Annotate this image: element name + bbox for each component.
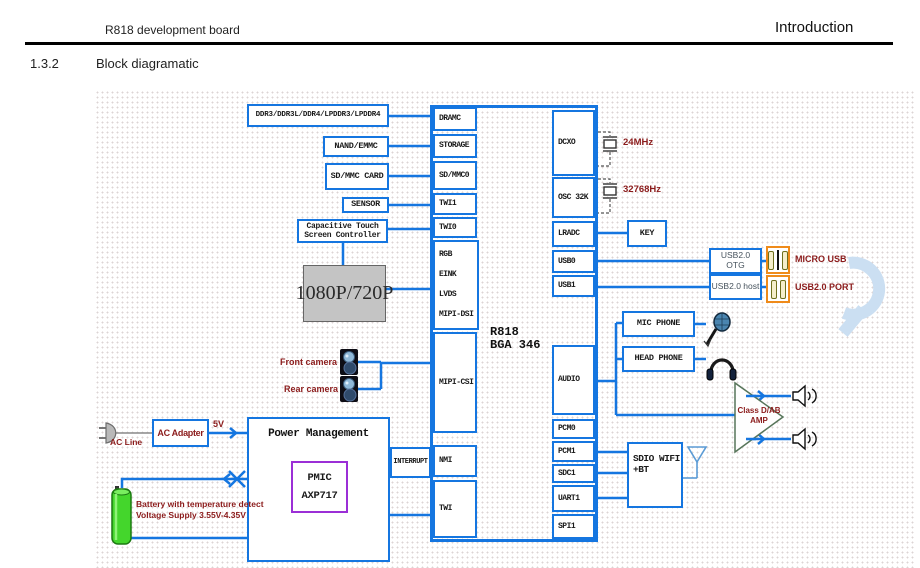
rail-5v-label: 5V: [213, 419, 224, 429]
head-phone-box: HEAD PHONE: [622, 346, 695, 372]
crystal-24mhz-icon: [598, 132, 617, 166]
battery-label: Battery with temperature detect Voltage …: [136, 499, 264, 521]
usb-port-label: USB2.0 PORT: [795, 282, 854, 292]
document-page: R818 development board Introduction 1.3.…: [0, 0, 920, 568]
chip-port-lradc: LRADC: [552, 221, 595, 247]
chip-port-dramc: DRAMC: [433, 107, 477, 131]
usb-otg-box: USB2.0 OTG: [709, 248, 762, 274]
sensor-box: SENSOR: [342, 197, 389, 213]
chip-port-pcm1: PCM1: [552, 441, 595, 462]
chip-port-uart1: UART1: [552, 485, 595, 512]
power-management-title: Power Management: [268, 428, 369, 441]
chip-port-storage: STORAGE: [433, 134, 477, 158]
headphone-icon: [707, 360, 736, 380]
amp-label-line2: AMP: [736, 416, 782, 425]
chip-port-usb0: USB0: [552, 250, 595, 273]
usb-host-box: USB2.0 host: [709, 274, 762, 300]
chip-port-sdmmc0: SD/MMC0: [433, 161, 477, 190]
mic-icon: [704, 313, 730, 346]
chip-port-twi: TWI: [433, 480, 477, 538]
rear-camera-label: Rear camera: [284, 384, 336, 394]
rear-camera-icon: [340, 376, 358, 402]
ac-adapter-box: AC Adapter: [152, 419, 209, 447]
pmic-box: PMIC AXP717: [291, 461, 348, 513]
crystal-24mhz-label: 24MHz: [623, 137, 653, 148]
sdio-wifi-bt-box: SDIO WIFI +BT: [627, 442, 683, 508]
chip-name: R818BGA 346: [490, 326, 540, 352]
sd-card-box: SD/MMC CARD: [325, 163, 389, 190]
chip-port-sdc1: SDC1: [552, 464, 595, 483]
chip-port-dcxo: DCXO: [552, 110, 595, 176]
usb-port-connector-icon: [766, 275, 790, 303]
crystal-32khz-icon: [598, 179, 617, 213]
chip-port-nmi: NMI: [433, 445, 477, 477]
chip-port-display-group: RGB EINK LVDS MIPI-DSI: [433, 240, 479, 330]
chip-port-osc32k: OSC 32K: [552, 177, 595, 218]
micro-usb-label: MICRO USB: [795, 254, 847, 264]
chip-port-twi0: TWI0: [433, 217, 477, 238]
antenna-icon: [683, 447, 706, 478]
front-camera-icon: [340, 349, 358, 375]
chip-port-spi1: SPI1: [552, 514, 595, 539]
battery-icon: [112, 486, 131, 544]
chip-port-mipi-csi: MIPI-CSI: [433, 332, 477, 433]
ac-line-label: AC Line: [110, 437, 142, 447]
nand-emmc-box: NAND/EMMC: [323, 136, 389, 157]
touch-controller-box: Capacitive Touch Screen Controller: [297, 219, 388, 243]
chip-port-twi1: TWI1: [433, 193, 477, 215]
chip-port-pcm0: PCM0: [552, 419, 595, 439]
chip-port-audio: AUDIO: [552, 345, 595, 415]
chip-port-usb1: USB1: [552, 275, 595, 297]
front-camera-label: Front camera: [280, 357, 336, 367]
crystal-32khz-label: 32768Hz: [623, 184, 661, 195]
display-panel-box: 1080P/720P: [303, 265, 386, 322]
dram-box: DDR3/DDR3L/DDR4/LPDDR3/LPDDR4: [247, 104, 389, 127]
speaker-icon-bottom: [793, 429, 816, 449]
mic-phone-box: MIC PHONE: [622, 311, 695, 337]
interrupt-box: INTERRUPT: [390, 447, 431, 478]
speaker-icon-top: [793, 386, 816, 406]
micro-usb-connector-icon: [766, 246, 790, 274]
amp-label-line1: Class D/AB: [736, 406, 782, 415]
key-box: KEY: [627, 220, 667, 247]
